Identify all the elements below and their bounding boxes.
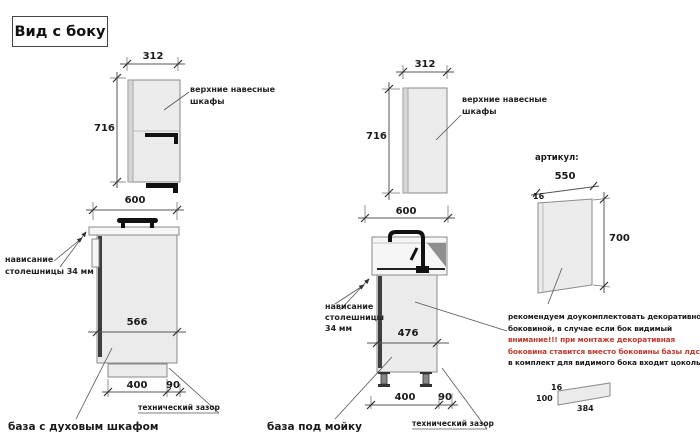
sink-base-caption: база под мойку	[267, 421, 362, 433]
plinth-thickness-dim: 16	[551, 383, 562, 392]
sink-base-cabinet	[377, 275, 437, 372]
oven-upper-width-dim: 312	[128, 51, 178, 62]
note-line-4-warning: боковина ставится вместо боковины базы л…	[508, 346, 700, 358]
panel-width-dim: 550	[545, 171, 585, 182]
note-line-5: в комплект для видимого бока входит цоко…	[508, 357, 700, 369]
oven-inner-width-dim: 566	[112, 317, 162, 328]
panel-thickness-dim: 16	[533, 192, 544, 201]
oven-countertop	[89, 227, 179, 235]
sink-overhang-label: нависание столешницы 34 мм	[325, 301, 384, 334]
oven-plinth-width-dim: 400	[112, 380, 162, 391]
sheet-title-box: Вид с боку	[12, 16, 108, 47]
note-line-1: рекомендуем доукомплектовать декоративно…	[508, 311, 700, 323]
sink-technical-gap-label: технический зазор	[412, 419, 494, 428]
adjustable-legs	[378, 372, 432, 387]
oven-upper-cabinets-label: верхние навесные шкафы	[190, 84, 275, 108]
panel-height-dim: 700	[609, 233, 630, 244]
sink-plinth-width-dim: 400	[380, 392, 430, 403]
oven-base-width-dim: 600	[110, 195, 160, 206]
drawing-linework	[0, 0, 700, 438]
oven-gap-width-dim: 90	[160, 380, 186, 391]
sink-upper-height-dim: 716	[366, 131, 386, 142]
oven-plinth	[108, 364, 167, 377]
oven-technical-gap-label: технический зазор	[138, 403, 220, 412]
sink-gap-width-dim: 90	[432, 392, 458, 403]
oven-base-cabinet	[97, 235, 177, 363]
sink-upper-cabinet-edge	[403, 88, 408, 193]
sink-base-width-dim: 600	[381, 206, 431, 217]
decorative-side-panel	[538, 199, 592, 293]
sink-upper-cabinet	[403, 88, 447, 193]
oven-upper-height-dim: 716	[94, 123, 114, 134]
oven-upper-bracket-bottom	[146, 183, 178, 188]
plinth-height-dim: 100	[536, 394, 553, 403]
article-heading: артикул:	[535, 153, 579, 163]
sink-base-drawing	[335, 65, 487, 429]
sheet-title: Вид с боку	[15, 24, 106, 40]
oven-base-drawing	[54, 57, 219, 419]
oven-upper-bracket-mid	[145, 133, 178, 137]
sink-inner-width-dim: 476	[383, 328, 433, 339]
sink-upper-cabinets-label: верхние навесные шкафы	[462, 94, 547, 118]
sink-upper-width-dim: 312	[400, 59, 450, 70]
plinth-length-dim: 384	[577, 404, 594, 413]
oven-overhang-label: нависание столешницы 34 мм	[5, 254, 94, 278]
plinth-panel	[558, 383, 610, 405]
note-line-3-warning: внимание!!! при монтаже декоративная	[508, 334, 675, 346]
oven-base-caption: база с духовым шкафом	[8, 421, 158, 433]
oven-upper-cabinet-edge	[128, 80, 133, 182]
side-view-drawing-sheet: Вид с боку 312 716 верхние навесные шкаф…	[0, 0, 700, 438]
note-line-2: боковиной, в случае если бок видимый	[508, 323, 672, 335]
